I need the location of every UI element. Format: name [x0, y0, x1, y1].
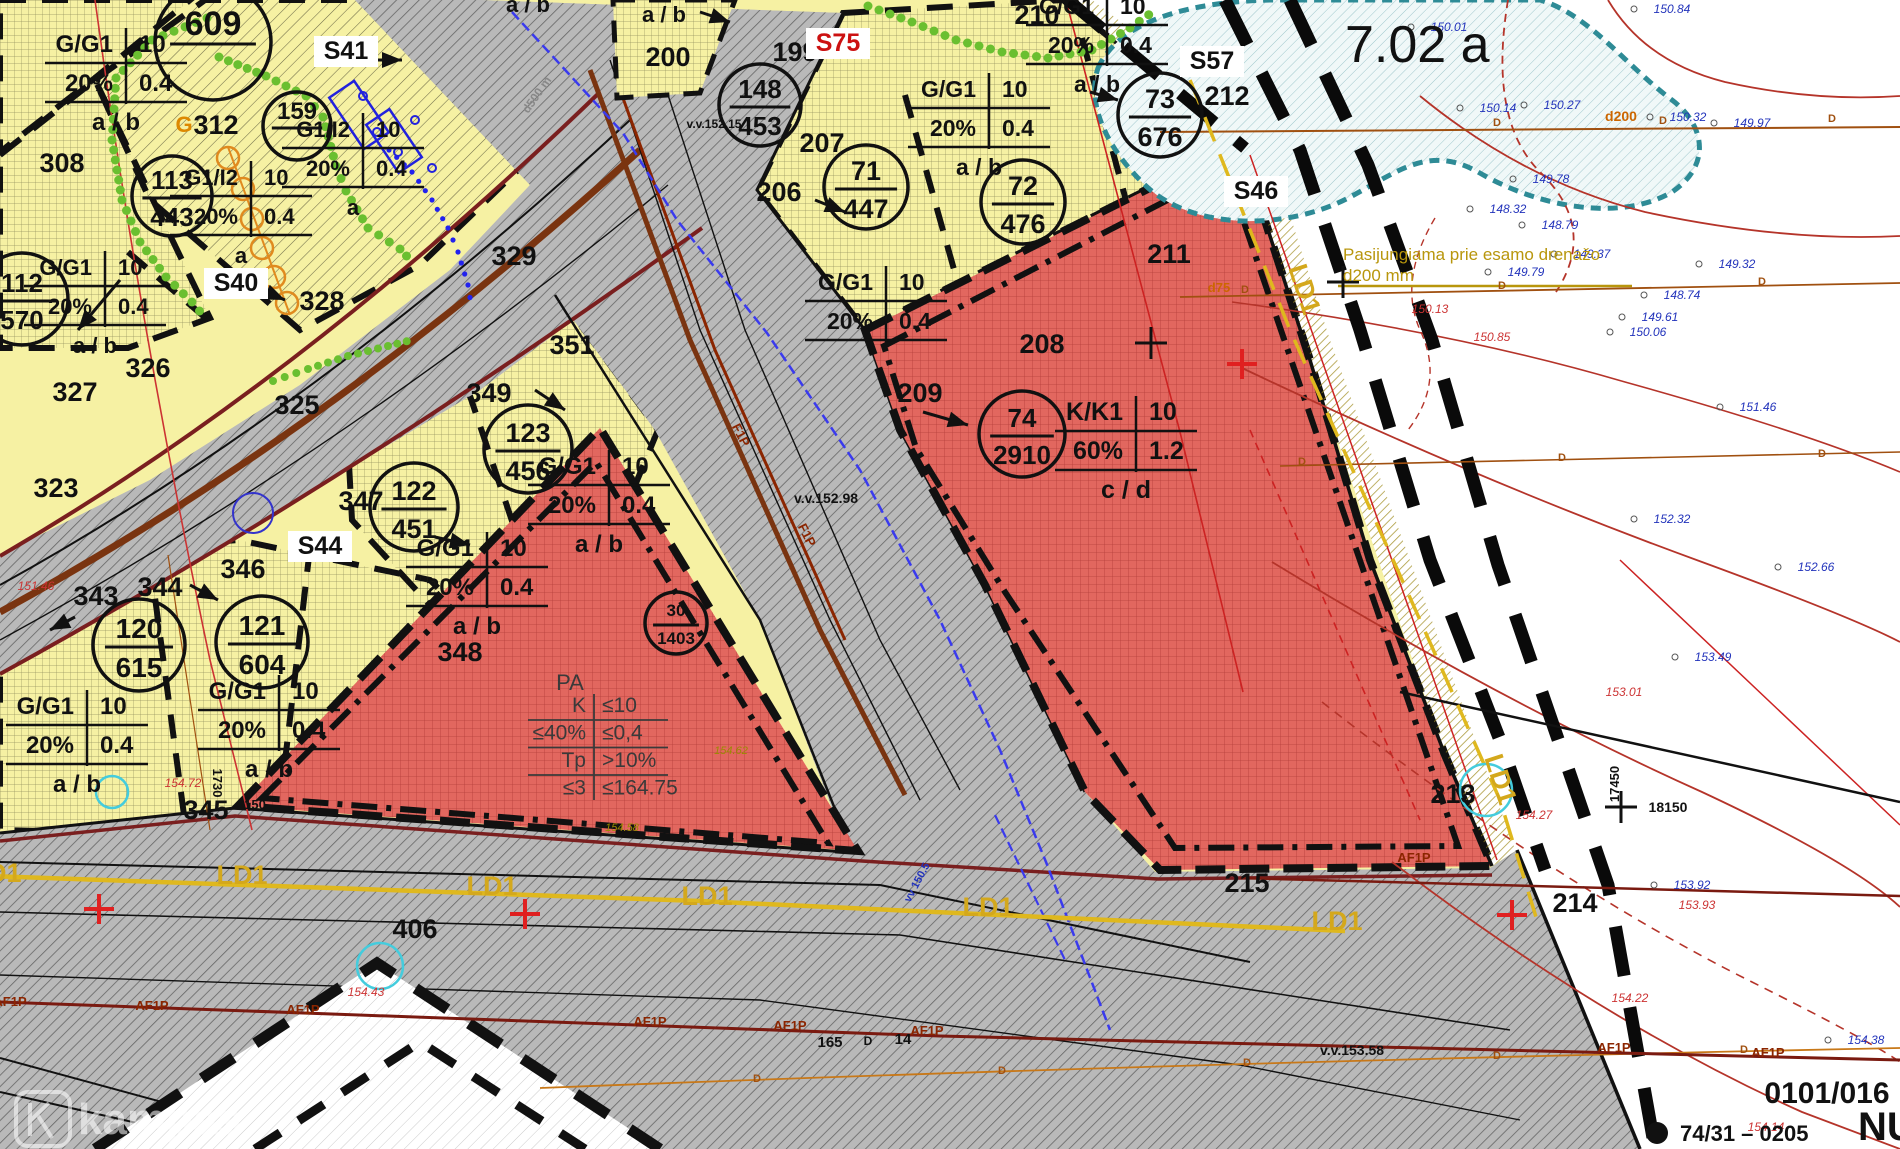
annotation: v.v.152.98	[794, 490, 858, 506]
corner-dot	[1646, 1122, 1668, 1144]
blue-dot-line	[462, 271, 467, 276]
drain-mark: D	[1818, 448, 1826, 460]
zone-param: >10%	[602, 749, 656, 772]
drain-mark: D	[1493, 1050, 1501, 1062]
zone-param: 20%	[26, 732, 74, 759]
street-number: 211	[1147, 239, 1191, 269]
street-number: 209	[897, 378, 942, 408]
drain-mark: D	[753, 1073, 761, 1085]
af1p-label: AF1P	[1751, 1045, 1785, 1060]
af1p-label: AF1P	[286, 1002, 320, 1017]
street-number: 343	[73, 581, 118, 611]
tree-line-dot	[1097, 40, 1106, 49]
elevation-label: 154.22	[1612, 991, 1649, 1005]
tree-line-dot	[952, 36, 961, 45]
zone-param: G1/I2	[184, 165, 238, 190]
tree-line-dot	[403, 337, 411, 345]
zone-param: 20%	[218, 717, 266, 744]
zone-param: a	[235, 243, 248, 268]
tree-line-dot	[243, 64, 252, 73]
street-number: 210	[1014, 0, 1059, 30]
annotation: D	[864, 1034, 873, 1048]
tree-line-dot	[114, 176, 123, 185]
zone-param: 0.4	[100, 732, 134, 759]
zone-param: 10	[1002, 76, 1028, 102]
elevation-label: 149.61	[1642, 310, 1679, 324]
zone-param: 20%	[194, 204, 238, 229]
zone-param: c / d	[1101, 476, 1151, 504]
elevation-label: 148.74	[1664, 288, 1701, 302]
tree-line-dot	[118, 196, 127, 205]
tree-line-dot	[136, 238, 145, 247]
zone-param: 10	[622, 453, 649, 480]
plot-area: 570	[0, 305, 43, 335]
zone-param: 10	[899, 269, 925, 295]
plot-area: 615	[116, 652, 163, 683]
af1p-label: AF1P	[135, 998, 169, 1013]
af1p-label: AF1P	[633, 1014, 667, 1029]
zone-param: a / b	[245, 756, 293, 783]
zoning-map: 6091134431591125701206151216041224511234…	[0, 0, 1900, 1149]
blue-dot-line	[423, 188, 428, 193]
section-label: S57	[1190, 47, 1234, 75]
zone-param: 0.4	[500, 574, 534, 601]
street-number: 208	[1019, 329, 1064, 359]
tree-line-dot	[385, 238, 394, 247]
plot-number: 30	[667, 601, 686, 620]
tree-line-dot	[998, 48, 1007, 57]
tree-line-dot	[930, 27, 939, 36]
section-label: S46	[1234, 177, 1278, 205]
elevation-label: 153.49	[1695, 650, 1732, 664]
zone-param: ≤40%	[532, 722, 586, 745]
annotation: a / b	[642, 2, 686, 27]
street-number: 200	[645, 42, 690, 72]
zone-param: a / b	[73, 333, 117, 358]
tree-line-dot	[963, 39, 972, 48]
tree-line-dot	[324, 359, 332, 367]
tree-line-dot	[292, 369, 300, 377]
tree-line-dot	[975, 42, 984, 51]
zone-param: 20%	[306, 156, 350, 181]
street-number: 325	[274, 390, 319, 420]
zone-param: K	[572, 694, 586, 717]
elevation-label: 148.32	[1490, 202, 1527, 216]
tree-line-dot	[142, 246, 151, 255]
street-number: 347	[338, 486, 383, 516]
street-number: 406	[392, 914, 437, 944]
zone-param: a / b	[92, 109, 140, 136]
elevation-label: 150.14	[1480, 101, 1517, 115]
zone-param: 20%	[827, 308, 873, 334]
zone-param: a / b	[956, 154, 1002, 180]
tree-line-dot	[304, 365, 312, 373]
tree-line-dot	[374, 231, 383, 240]
zone-param: Tp	[561, 749, 586, 772]
plot-area: 443	[150, 202, 193, 232]
zone-param: 0.4	[264, 204, 295, 229]
plot-area: 1403	[657, 629, 695, 648]
ld1-label: LD1	[1311, 906, 1362, 936]
tree-line-dot	[941, 31, 950, 40]
plot-number: 72	[1008, 171, 1038, 201]
tree-line-dot	[314, 362, 322, 370]
elevation-label: 152.32	[1654, 512, 1691, 526]
drain-mark: D	[998, 1065, 1006, 1077]
street-number: 351	[549, 330, 594, 360]
af1p-label: AF1P	[773, 1018, 807, 1033]
zone-param: 0.4	[292, 717, 326, 744]
tree-line-dot	[1032, 52, 1041, 61]
zone-param: 10	[100, 693, 127, 720]
tree-line-dot	[109, 146, 118, 155]
tree-line-dot	[384, 342, 392, 350]
plot-number: 120	[116, 613, 163, 644]
tree-line-dot	[282, 82, 291, 91]
tree-line-dot	[155, 264, 164, 273]
zone-param: 20%	[48, 294, 92, 319]
street-number: 345	[183, 795, 228, 825]
street-number: 329	[491, 241, 536, 271]
tree-line-dot	[875, 6, 884, 15]
zone-param: 20%	[1048, 32, 1094, 58]
watermark-text: kampas	[78, 1095, 242, 1144]
plot-number: 123	[505, 418, 550, 448]
zoning-map-canvas: 6091134431591125701206151216041224511234…	[0, 0, 1900, 1149]
zone-param: G/G1	[209, 678, 266, 705]
tree-line-dot	[170, 27, 179, 36]
tree-line-dot	[149, 255, 158, 264]
af1p-label: AF1P	[910, 1023, 944, 1038]
plot-number: 609	[185, 5, 242, 43]
zone-param: ≤3	[563, 777, 586, 800]
plot-number: 71	[851, 156, 881, 186]
ld1-label: LD1	[0, 858, 22, 888]
blue-dot-line	[409, 169, 414, 174]
tree-line-dot	[1021, 51, 1030, 60]
tree-line-dot	[127, 217, 136, 226]
elevation-label: 154.58	[605, 822, 640, 834]
elevation-label: 150.32	[1670, 110, 1707, 124]
zone-param: G/G1	[39, 255, 92, 280]
elevation-label: 150.06	[1630, 325, 1667, 339]
tree-line-dot	[886, 10, 895, 19]
tree-line-dot	[919, 22, 928, 31]
zone-param: 0.4	[899, 308, 931, 334]
street-number: 346	[220, 554, 265, 584]
zone-param: ≤0,4	[602, 722, 643, 745]
zone-param: 1.2	[1149, 437, 1184, 465]
plot-number: 121	[239, 610, 286, 641]
elevation-label: 154.43	[348, 985, 385, 999]
tree-line-dot	[179, 289, 188, 298]
plot-number: 74	[1008, 403, 1037, 433]
tree-line-dot	[162, 273, 171, 282]
tree-line-dot	[233, 60, 242, 69]
blue-dot-line	[465, 282, 470, 287]
street-number: 213	[1430, 779, 1475, 809]
blue-dot-line	[455, 249, 460, 254]
zone-param: G/G1	[818, 269, 873, 295]
ld1-label: LD1	[681, 881, 732, 911]
tree-line-dot	[111, 156, 120, 165]
drain-mark: D	[1740, 1044, 1748, 1056]
zone-param: 10	[376, 117, 400, 142]
blue-dot-line	[445, 225, 450, 230]
zone-param: 0.4	[1002, 115, 1034, 141]
tree-line-dot	[897, 14, 906, 23]
elevation-label: 150.13	[1412, 302, 1449, 316]
ld1-label: LD1	[466, 871, 517, 901]
zone-param: G/G1	[17, 693, 74, 720]
blue-dot-line	[429, 197, 434, 202]
zone-param: 10	[1149, 398, 1177, 426]
tree-line-dot	[1009, 49, 1018, 58]
af1p-label: AF1P	[0, 994, 27, 1009]
zone-param: 0.4	[139, 70, 173, 97]
elevation-label: 154.27	[1516, 808, 1554, 822]
tree-line-dot	[188, 298, 197, 307]
tree-line-dot	[864, 2, 873, 11]
tree-line-dot	[215, 53, 224, 62]
drain-mark: D	[1493, 117, 1501, 129]
elevation-label: 154.38	[1848, 1033, 1885, 1047]
street-number: 214	[1552, 888, 1597, 918]
street-number: 326	[125, 353, 170, 383]
elevation-label: 149.78	[1533, 172, 1570, 186]
tree-line-dot	[108, 136, 117, 145]
zone-param: a / b	[53, 771, 101, 798]
tree-line-dot	[170, 281, 179, 290]
street-number: 323	[33, 473, 78, 503]
zone-param: a / b	[453, 613, 501, 640]
elevation-label: 149.79	[1508, 265, 1545, 279]
elevation-label: 150.27	[1544, 98, 1582, 112]
ownership-label: NUOSAV	[1858, 1105, 1900, 1149]
annotation: d200	[1605, 108, 1637, 124]
zone-param: G/G1	[56, 31, 113, 58]
blue-dot-line	[435, 207, 440, 212]
tree-line-dot	[908, 18, 917, 27]
zone-param: 60%	[1073, 437, 1123, 465]
tree-line-dot	[344, 352, 352, 360]
street-number: 308	[39, 148, 84, 178]
annotation: v.v.152.15	[687, 117, 742, 131]
drainage-note: d200 mm	[1343, 266, 1414, 285]
annotation: 18150	[1649, 799, 1688, 815]
tree-line-dot	[131, 227, 140, 236]
annotation: d75	[1208, 280, 1230, 295]
tree-line-dot	[195, 307, 204, 316]
elevation-label: 150.85	[1474, 330, 1511, 344]
zone-param: a	[347, 195, 360, 220]
elevation-label: 154.72	[165, 776, 202, 790]
drain-mark: D	[1828, 113, 1836, 125]
plot-area: 476	[1000, 209, 1045, 239]
elevation-label: 148.79	[1542, 218, 1579, 232]
section-label: S41	[324, 37, 369, 65]
zone-param: ≤164.75	[602, 777, 678, 800]
zone-param: ≤10	[602, 694, 637, 717]
tree-line-dot	[113, 166, 122, 175]
drain-mark: D	[1758, 276, 1766, 288]
plot-area: 676	[1137, 122, 1182, 152]
annotation: v.v.153.58	[1320, 1042, 1384, 1058]
elevation-label: 150.84	[1654, 2, 1691, 16]
tree-line-dot	[393, 340, 401, 348]
tree-line-dot	[364, 347, 372, 355]
af1p-label: AF1P	[1597, 1040, 1631, 1055]
zone-param: 20%	[548, 492, 596, 519]
plot-number: 73	[1145, 84, 1175, 114]
annotation: 1730	[210, 769, 225, 798]
zone-param: K/K1	[1066, 398, 1123, 426]
blue-dot-line	[440, 216, 445, 221]
plot-number: 122	[391, 476, 436, 506]
tree-line-dot	[396, 245, 405, 254]
ld1-label: LD1	[216, 860, 267, 890]
blue-dot-line	[416, 179, 421, 184]
street-number: 215	[1224, 868, 1269, 898]
tree-line-dot	[116, 186, 125, 195]
zone-param: 20%	[426, 574, 474, 601]
zone-param: 10	[139, 31, 166, 58]
elevation-label: 149.32	[1719, 257, 1756, 271]
street-number: 312	[193, 110, 238, 140]
parcel-code: 74/31 – 0205	[1680, 1121, 1808, 1146]
tree-line-dot	[122, 206, 131, 215]
tree-line-dot	[358, 214, 367, 223]
zone-param: G/G1	[921, 76, 976, 102]
elevation-label: 154.62	[714, 745, 748, 757]
elevation-label: 152.66	[1798, 560, 1835, 574]
af1p-label: AF1P	[1397, 850, 1431, 865]
drain-mark: D	[1659, 115, 1667, 127]
zone-param: 10	[118, 255, 142, 280]
sheet-label: 7.02 a	[1345, 16, 1490, 74]
zone-param: 20%	[65, 70, 113, 97]
elevation-label: 153.92	[1674, 878, 1711, 892]
street-number: 348	[437, 637, 482, 667]
zone-param: 10	[292, 678, 319, 705]
tree-line-dot	[374, 345, 382, 353]
section-label: S44	[298, 532, 343, 560]
zone-param: 0.4	[118, 294, 149, 319]
tree-line-dot	[269, 377, 277, 385]
tree-line-dot	[364, 224, 373, 233]
annotation: 150	[244, 797, 266, 812]
annotation: a / b	[506, 0, 550, 17]
tree-line-dot	[281, 373, 289, 381]
drain-mark: D	[1558, 452, 1566, 464]
drain-mark: D	[1243, 1057, 1251, 1069]
drainage-note: Pasijungiama prie esamo drenažo	[1343, 245, 1600, 264]
zone-param: G1/I2	[296, 117, 350, 142]
street-number: 344	[137, 572, 182, 602]
zone-param: 0.4	[376, 156, 407, 181]
drain-mark: D	[1241, 284, 1249, 296]
section-label: S75	[816, 29, 861, 57]
street-number: 349	[466, 378, 511, 408]
tree-line-dot	[224, 56, 233, 65]
drain-mark: D	[1298, 456, 1306, 468]
blue-dot-line	[459, 260, 464, 265]
plot-area: 447	[843, 194, 888, 224]
zone-param: 10	[1120, 0, 1146, 19]
zone-param: 10	[500, 535, 527, 562]
plot-number: 112	[1, 268, 43, 298]
street-number: 207	[799, 128, 844, 158]
plot-number: 148	[738, 74, 781, 104]
elevation-label: 151.46	[18, 579, 55, 593]
zone-param: a / b	[575, 531, 623, 558]
zone-param: PA	[556, 670, 584, 695]
tree-line-dot	[402, 252, 411, 261]
annotation: 165	[817, 1034, 842, 1051]
street-number: 206	[756, 177, 801, 207]
street-number: 327	[52, 377, 97, 407]
zone-param: a / b	[1074, 71, 1120, 97]
zone-param: 20%	[930, 115, 976, 141]
tree-line-dot	[986, 45, 995, 54]
section-label: S40	[214, 269, 258, 297]
drain-mark: D	[1498, 280, 1506, 292]
elevation-label: 149.97	[1734, 116, 1772, 130]
plot-area: 2910	[993, 440, 1051, 470]
tree-line-dot	[272, 77, 281, 86]
zone-param: G/G1	[417, 535, 474, 562]
zone-param: 0.4	[1120, 32, 1152, 58]
street-number: 328	[299, 286, 344, 316]
blue-dot-line	[467, 295, 472, 300]
zone-param: G/G1	[539, 453, 596, 480]
annotation: G	[175, 112, 192, 137]
tree-line-dot	[334, 355, 342, 363]
elevation-label: 153.93	[1679, 898, 1716, 912]
ld1-label: LD1	[962, 892, 1013, 922]
tree-line-dot	[354, 350, 362, 358]
plot-area: 453	[738, 111, 781, 141]
elevation-label: 151.46	[1740, 400, 1777, 414]
street-number: 212	[1204, 81, 1249, 111]
elevation-label: 153.01	[1606, 685, 1643, 699]
blue-dot-line	[450, 237, 455, 242]
zone-param: 0.4	[622, 492, 656, 519]
